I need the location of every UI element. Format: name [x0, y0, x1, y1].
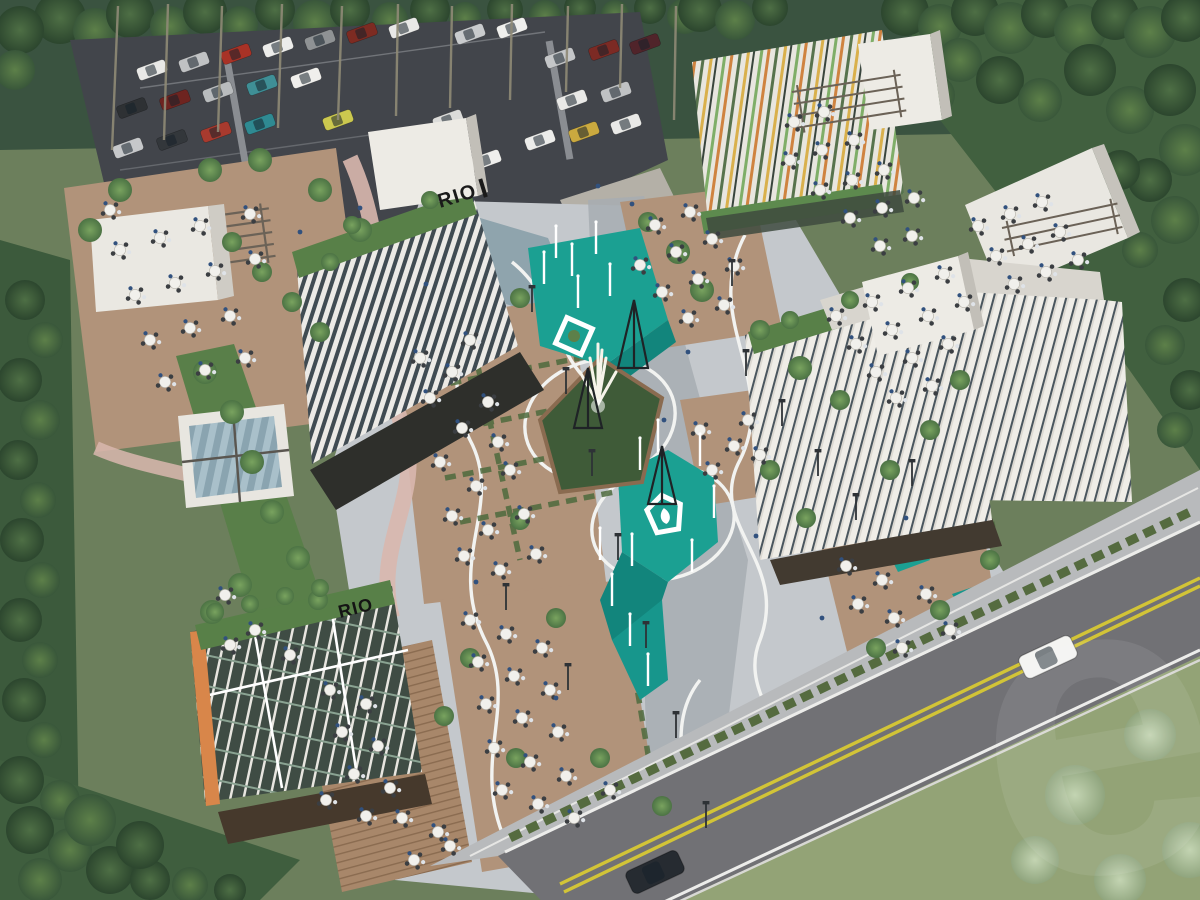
tree	[590, 748, 610, 768]
pedestrian	[662, 418, 667, 423]
pedestrian	[754, 534, 759, 539]
tree	[950, 370, 970, 390]
tree	[22, 642, 58, 678]
tree	[116, 821, 164, 869]
light-pole	[594, 220, 597, 254]
tree	[546, 608, 566, 628]
tree	[20, 482, 56, 518]
tree	[1064, 44, 1116, 96]
tree	[311, 579, 329, 597]
light-pole	[610, 572, 613, 606]
tree	[1151, 196, 1199, 244]
aerial-scene: RIO	[0, 0, 1200, 900]
tree	[1157, 412, 1193, 448]
tree	[286, 546, 310, 570]
light-pole	[698, 432, 701, 466]
tree	[260, 500, 284, 524]
tree	[228, 573, 252, 597]
tree	[510, 288, 530, 308]
tree	[434, 706, 454, 726]
tree	[20, 400, 60, 440]
tree	[750, 320, 770, 340]
tree	[198, 158, 222, 182]
tree	[715, 0, 755, 40]
tree	[0, 518, 44, 562]
tree	[310, 322, 330, 342]
render-canvas: RIO	[0, 0, 1200, 900]
tree	[0, 358, 42, 402]
pedestrian	[820, 616, 825, 621]
tree	[0, 598, 42, 642]
pedestrian	[596, 184, 601, 189]
pedestrian	[474, 580, 479, 585]
light-pole	[554, 224, 557, 258]
tree	[5, 280, 45, 320]
light-pole	[576, 274, 579, 308]
tree	[652, 796, 672, 816]
tree	[976, 56, 1024, 104]
tree	[308, 178, 332, 202]
tree	[27, 322, 63, 358]
tree	[248, 148, 272, 172]
light-pole	[712, 484, 715, 518]
light-pole	[628, 612, 631, 646]
tree	[220, 400, 244, 424]
tree	[796, 508, 816, 528]
tree	[26, 722, 62, 758]
light-pole	[608, 262, 611, 296]
tree	[206, 603, 224, 621]
light-pole	[570, 242, 573, 276]
pedestrian	[686, 350, 691, 355]
light-pole	[646, 652, 649, 686]
tree	[343, 216, 361, 234]
tree	[108, 178, 132, 202]
tree	[841, 291, 859, 309]
pedestrian	[424, 282, 429, 287]
tree	[781, 311, 799, 329]
tree	[880, 460, 900, 480]
tree	[1018, 78, 1062, 122]
tree	[78, 218, 102, 242]
light-pole	[656, 418, 659, 452]
tree	[321, 253, 339, 271]
light-pole	[542, 250, 545, 284]
tree	[1144, 64, 1196, 116]
tree	[276, 587, 294, 605]
pedestrian	[630, 202, 635, 207]
light-pole	[598, 526, 601, 560]
tree	[282, 292, 302, 312]
tree	[788, 356, 812, 380]
tree	[421, 191, 439, 209]
tree	[24, 562, 60, 598]
pedestrian	[904, 516, 909, 521]
tree	[222, 232, 242, 252]
tree	[2, 678, 46, 722]
pedestrian	[554, 696, 559, 701]
tree	[18, 858, 62, 900]
tree	[64, 794, 116, 846]
tree	[6, 806, 54, 854]
light-pole	[638, 436, 641, 470]
tree	[930, 600, 950, 620]
tree	[866, 638, 886, 658]
tree	[241, 595, 259, 613]
tree	[252, 262, 272, 282]
pedestrian	[298, 230, 303, 235]
light-pole	[690, 538, 693, 572]
tree	[1145, 325, 1185, 365]
tree	[830, 390, 850, 410]
tree	[920, 420, 940, 440]
tree	[240, 450, 264, 474]
light-pole	[630, 532, 633, 566]
pedestrian	[358, 206, 363, 211]
